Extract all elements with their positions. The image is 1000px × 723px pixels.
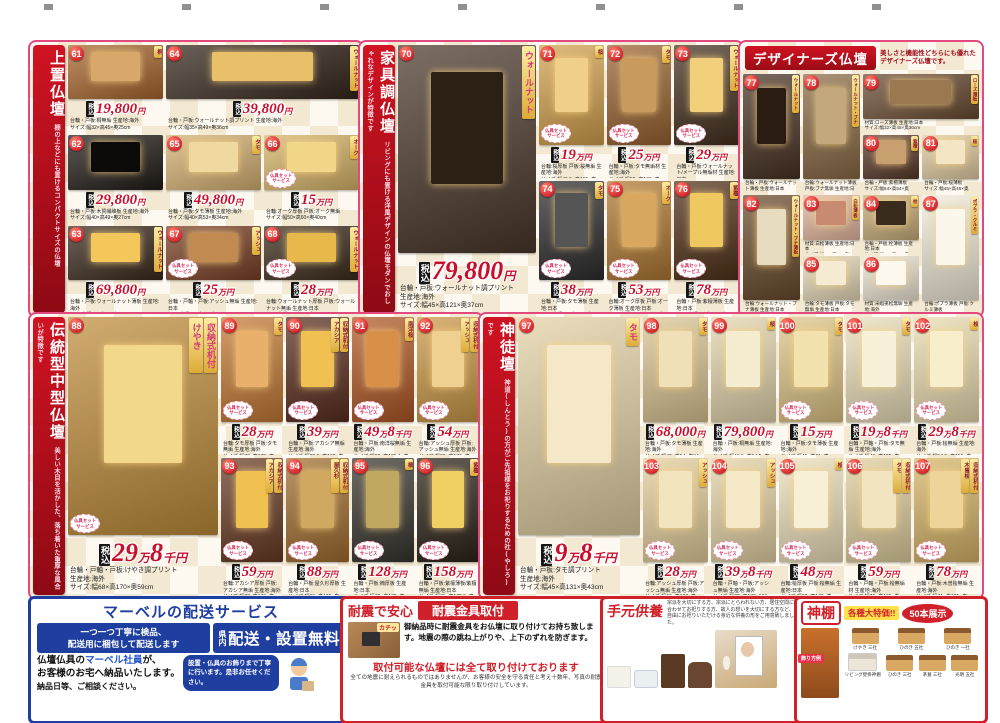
product-100: 100タモ仏具セットサービス税込15万円台輪・戸板:タモ薄板 生産地:海外サイズ… <box>779 317 844 455</box>
product-price: 税込29万8千円 <box>68 535 218 566</box>
product-image-interior <box>726 331 760 387</box>
material-tag: アカシア <box>266 459 274 493</box>
price-unit: 万円 <box>322 431 338 440</box>
kamidana-item: リビング壁掛神棚 <box>845 653 881 678</box>
product-number-badge: 78 <box>804 75 819 90</box>
product-number-badge: 61 <box>69 46 84 61</box>
product-price: 税込39万円 <box>286 422 348 440</box>
shrine-thumbnail <box>944 628 971 644</box>
shrine-thumbnail <box>848 653 877 671</box>
product-caption: 台輪・戸板:ウォールナット/メープル無垢材 生産地:日本サイズ:幅53×高117… <box>674 163 739 178</box>
material-tag: アッシュ <box>699 459 707 487</box>
tax-included-label: 税込 <box>618 282 626 298</box>
product-image-interior <box>876 140 906 164</box>
price-unit: 千円 <box>959 431 975 440</box>
price-number: 48 <box>800 565 815 580</box>
price-unit: 万円 <box>316 289 332 298</box>
tax-included-label: 税込 <box>297 564 305 580</box>
price-number: 69,800 <box>96 283 137 298</box>
product-86: 86材質:米蝦夷松無垢 生産地:海外サイズ:幅40×高51×奥33cm <box>863 256 920 314</box>
tax-included-label: 税込 <box>358 564 366 580</box>
butsugu-set-badge: 仏具セットサービス <box>168 259 198 278</box>
material-tags: タモ <box>626 318 639 346</box>
price-unit: 千円 <box>593 552 617 566</box>
price-unit: 万円 <box>218 289 234 298</box>
butsugu-set-badge: 仏具セットサービス <box>266 169 296 188</box>
product-image-interior <box>366 471 398 527</box>
material-tag: タモ <box>595 182 603 199</box>
product-image-interior <box>936 140 966 164</box>
product-87: 87ポプラ・クルミ台輪:ポプラ薄板 戸板:クルミ薄板サイズ:幅51×高145.5… <box>922 195 979 313</box>
price-unit: 千円 <box>891 431 907 440</box>
price-number: 25 <box>203 283 218 298</box>
product-81: 81桜台輪・戸板:桜薄板サイズ:幅45×高45×奥33cm <box>922 135 979 193</box>
material-tags: タモ <box>902 318 910 335</box>
product-price: 税込28万円 <box>221 422 283 440</box>
product-caption: 材質:白松薄板 生産地:日本サイズ:幅59×高41×奥30cm <box>803 240 860 253</box>
product-95: 95楠仏具セットサービス税込128万円台輪・戸板:楠厚板 生産地:日本サイズ:幅… <box>352 458 414 596</box>
butsugu-set-badge: 仏具セットサービス <box>609 259 639 278</box>
product-image-interior <box>659 471 693 527</box>
product-number-badge: 98 <box>644 318 659 333</box>
material-tag: ウォールナット <box>792 75 799 113</box>
material-tags: 桧 <box>970 318 978 330</box>
product-caption: 台輪・戸板:桐無垢 生産地:海外サイズ:幅43.5×高54.5×奥35cm <box>711 440 776 455</box>
price-number: 29,800 <box>96 193 137 208</box>
product-caption: 台輪:オーク厚板 戸板:オーク無垢サイズ:幅50×高60×奥40cm <box>264 208 359 223</box>
price-unit: 千円 <box>395 431 411 440</box>
tax-included-label: 税込 <box>86 282 94 298</box>
price-unit: 万円 <box>456 571 472 580</box>
product-63: 63ウォールナット税込69,800円台輪・戸板:ウォールナット薄板 生産地:海外… <box>68 226 163 313</box>
product-caption: 台輪・戸板:タモ薄板 生産地:海外サイズ:幅45×高61×奥36.5cm <box>779 440 844 455</box>
product-price: 税込48万円 <box>779 562 844 580</box>
product-price: 税込19万円 <box>539 145 604 163</box>
product-image-interior <box>930 471 964 527</box>
product-image-interior <box>622 58 656 112</box>
material-tags: オーク <box>350 136 358 159</box>
delivery-check-badge: 一つ一つ丁寧に検品、配送用に梱包して配送します <box>37 623 210 653</box>
section-title: 伝統型中型仏壇 <box>48 322 65 441</box>
material-tag: ウォールナット <box>154 227 162 272</box>
material-tag: タモ <box>626 318 639 346</box>
material-tags: ウォールナット <box>350 46 358 91</box>
material-tag: 桜 <box>767 318 775 330</box>
butsugu-set-badge: 仏具セットサービス <box>288 401 318 420</box>
material-tags: けやき収納式机付 <box>189 318 217 373</box>
butsugu-set-badge: 仏具セットサービス <box>916 401 946 420</box>
material-tag: 木曽桧 <box>961 459 969 493</box>
product-image-interior <box>212 52 312 81</box>
price-number: 28 <box>665 565 680 580</box>
product-number-badge: 104 <box>712 459 727 474</box>
product-caption: 台輪・戸板:紫檀薄板サイズ:幅64×高54×奥35cm <box>863 179 920 192</box>
product-image-interior <box>816 201 846 225</box>
tax-included-label: 税込 <box>851 424 859 440</box>
kamidana-item: ひのき 一社 <box>944 628 971 651</box>
price-number: 8 <box>150 540 163 566</box>
product-number-badge: 71 <box>540 46 555 61</box>
product-number-badge: 89 <box>222 318 237 333</box>
kamidana-display-photo: 飾り方例 <box>801 628 839 698</box>
tax-included-label: 税込 <box>646 424 654 440</box>
material-tag: アッシュ <box>252 227 260 255</box>
product-image-interior <box>555 193 589 247</box>
product-62: 62税込29,800円台輪・戸板:木質繊維板 生産地:海外サイズ:幅40×高49… <box>68 135 163 222</box>
product-caption: 台輪:アッシュ厚板 戸板:アッシュ無垢 生産地:海外サイズ:幅69×高170×奥… <box>417 440 479 455</box>
product-80: 80紫檀台輪・戸板:紫檀薄板サイズ:幅64×高54×奥35cm <box>863 135 920 193</box>
delivery-check-line2: 配送用に梱包して配送します <box>68 639 179 649</box>
price-unit: 万円 <box>815 571 831 580</box>
shrine-thumbnail <box>852 628 879 644</box>
material-tags: タモ <box>662 46 670 63</box>
material-tags: 桜 <box>767 318 775 330</box>
product-image-interior <box>862 331 896 387</box>
price-number: 39,800 <box>243 102 284 117</box>
price-number: 128 <box>368 565 391 580</box>
product-caption: 台輪・戸板:木質繊維板 生産地:海外サイズ:幅40×高49×奥27cm <box>68 208 163 223</box>
product-image-interior <box>366 331 398 387</box>
product-caption: 台輪・戸板:桜薄板サイズ:幅45×高45×奥33cm <box>922 179 979 192</box>
butsugu-set-badge: 仏具セットサービス <box>541 259 571 278</box>
price-number: 8 <box>580 540 593 566</box>
butsugu-set-badge: 仏具セットサービス <box>419 401 449 420</box>
material-tag: タモ <box>662 46 670 63</box>
price-unit: 円 <box>765 431 773 440</box>
material-tags: ウォールナット <box>154 227 162 272</box>
material-tags: 木曽桧収納式机付 <box>961 459 978 493</box>
kamidana-item-label: ひのき 三社 <box>888 672 912 678</box>
price-unit: 万円 <box>711 289 727 298</box>
price-number: 9 <box>554 540 567 566</box>
kamidana-panel: 神棚 各種大特価!! 50本展示 飾り方例 けやき 三社ひのき 五社ひのき 一社… <box>794 596 988 723</box>
product-grid-designers: 77ウォールナット台輪・戸板:ウォールナット薄板 生産地:日本サイズ:幅46.5… <box>743 74 979 313</box>
product-93: 93アカシア収納式机付仏具セットサービス税込59万円台輪:アカシア厚板 戸板:ア… <box>221 458 283 596</box>
price-unit: 万円 <box>680 571 696 580</box>
tax-included-label: 税込 <box>551 147 559 163</box>
kamidana-item-label: 光明 五社 <box>955 672 974 678</box>
material-tags: オーク <box>662 182 670 205</box>
product-caption: 台輪・戸軸・戸板:アッシュ無垢 生産地:日本サイズ:幅59×高78×奥50cm <box>166 298 261 313</box>
product-grid-kagucho: 70ウォールナット税込79,800円台輪・戸板:ウォールナット調プリント生産地:… <box>398 45 739 313</box>
material-tags: 紫檀 <box>470 459 478 476</box>
material-tags: タモ <box>595 182 603 199</box>
product-image-interior <box>301 331 333 387</box>
tax-included-label: 税込 <box>232 424 240 440</box>
product-number-badge: 95 <box>353 459 368 474</box>
price-number: 49,800 <box>194 193 235 208</box>
product-price: 税込9万8千円 <box>518 535 640 566</box>
product-caption: 台輪・戸板:屋久杉厚板 生産地:日本サイズ:幅69×高170×奥58cm <box>286 580 348 595</box>
section-banner-kagucho: 家具調仏壇リビングにも置ける洋風デザインの仏壇モダンでおしゃれなデザインが特徴で… <box>363 45 395 313</box>
material-tags: アッシュ <box>767 459 775 487</box>
product-caption: 台輪・戸板:木曽桧無垢 生産地:海外サイズ:幅71×高171×奥66cm <box>914 580 979 595</box>
material-tags: 楠 <box>405 459 413 471</box>
product-image: ウォールナット <box>398 45 536 253</box>
product-64: 64ウォールナット税込39,800円台輪・戸板:ウォールナット調プリント 生産地… <box>166 45 359 132</box>
material-tag: 桜 <box>971 136 978 147</box>
butsugu-set-badge: 仏具セットサービス <box>645 541 675 560</box>
tax-included-label: 税込 <box>918 424 926 440</box>
product-image: ウォールナット <box>166 45 359 99</box>
kamidana-item-label: リビング壁掛神棚 <box>845 672 881 678</box>
kamidana-item: ひのき 五社 <box>898 628 925 651</box>
product-image: ローズ薄板 <box>863 74 980 119</box>
butsugu-set-badge: 仏具セットサービス <box>266 259 296 278</box>
product-image-interior <box>287 142 336 171</box>
price-number: 15 <box>301 193 316 208</box>
material-tags: 屋久杉収納式机付 <box>331 459 348 493</box>
material-tags: ウォールナット <box>522 46 535 119</box>
product-68: 68ウォールナット仏具セットサービス税込28万円台輪:ウォールナット厚板 戸板:… <box>264 226 359 313</box>
material-tag: 桧 <box>835 459 843 471</box>
product-grid-shinto: 97タモ税込9万8千円台輪・戸板:タモ調プリント生産地:海外サイズ:幅45×高1… <box>518 317 979 595</box>
material-tags: 紫檀 <box>730 182 738 199</box>
product-image-interior <box>757 88 787 145</box>
kamidana-header: 神棚 各種大特価!! 50本展示 <box>801 601 981 625</box>
product-price: 税込29万円 <box>674 145 739 163</box>
bracket-photo: カチッ <box>348 622 400 658</box>
material-tag: ウォールナット <box>522 46 535 119</box>
product-caption: 台輪・戸板:アカシア無垢 生産地:海外サイズ:幅62.6×高162×奥57cm <box>286 440 348 455</box>
product-97: 97タモ税込9万8千円台輪・戸板:タモ調プリント生産地:海外サイズ:幅45×高1… <box>518 317 640 595</box>
product-price: 税込49,800円 <box>166 190 261 208</box>
tax-included-label: 税込 <box>232 564 240 580</box>
kamidana-item-label: けやき 三社 <box>853 645 877 651</box>
product-number-badge: 83 <box>804 196 819 211</box>
product-caption: 台輪・戸板:紫檀薄板/紫檀無垢 生産地:日本サイズ:幅71×高172.5×奥63… <box>417 580 479 595</box>
taishin-highlight-text: 取付可能な仏壇には全て取り付けております <box>348 659 604 674</box>
click-sound-label: カチッ <box>377 623 399 632</box>
kamidana-item: 光明 五社 <box>951 655 978 678</box>
product-price: 税込29万8千円 <box>914 422 979 440</box>
product-image-interior <box>690 58 724 112</box>
material-tags: ローズ薄板 <box>971 75 978 104</box>
product-grid-dentou: 88けやき収納式机付仏具セットサービス税込29万8千円台輪・戸軸・戸板:けやき調… <box>68 317 479 595</box>
butsugu-set-badge: 仏具セットサービス <box>676 259 706 278</box>
material-tag: 南洋桜 <box>405 318 413 341</box>
product-83: 83白松薄板材質:白松薄板 生産地:日本サイズ:幅59×高41×奥30cm <box>803 195 860 253</box>
kamidana-item-label: ひのき 五社 <box>900 645 924 651</box>
product-caption: 台輪・戸板:タモ薄板 生産地:海外サイズ:幅40×高53×奥34cm <box>166 208 261 223</box>
butsugu-set-badge: 仏具セットサービス <box>713 541 743 560</box>
material-tags: 桜 <box>595 46 603 58</box>
product-image-interior <box>431 72 503 184</box>
product-number-badge: 94 <box>287 459 302 474</box>
price-unit: 万円 <box>391 571 407 580</box>
product-number-badge: 97 <box>519 318 534 333</box>
material-tags: ウォールナット・ブナ薄板 <box>792 196 799 257</box>
material-tag: ウォールナット <box>350 227 358 272</box>
material-tag: 紫檀 <box>730 182 738 199</box>
product-image: けやき収納式机付仏具セットサービス <box>68 317 218 535</box>
tax-included-label: 税込 <box>714 424 722 440</box>
product-number-badge: 64 <box>167 46 182 61</box>
price-unit: 円 <box>137 289 145 298</box>
product-caption: 台輪・戸板:ウォールナット調プリント生産地:海外サイズ:幅45×高121×奥37… <box>398 284 536 313</box>
material-tag: 屋久杉 <box>331 459 339 493</box>
tax-included-label: 税込 <box>291 192 299 208</box>
product-73: 73ウォールナット仏具セットサービス税込29万円台輪・戸板:ウォールナット/メー… <box>674 45 739 178</box>
product-74: 74タモ仏具セットサービス税込38万円台輪・戸板:タモ薄板 生産地:日本サイズ:… <box>539 181 604 314</box>
product-66: 66オーク仏具セットサービス税込15万円台輪:オーク厚板 戸板:オーク無垢サイズ… <box>264 135 359 222</box>
material-tag: アッシュ <box>461 318 469 352</box>
price-unit: 円 <box>284 108 292 117</box>
material-tag: オーク <box>662 182 670 205</box>
product-number-badge: 74 <box>540 182 555 197</box>
price-unit: 円 <box>137 199 145 208</box>
product-99: 99桜税込79,800円台輪・戸板:桐無垢 生産地:海外サイズ:幅43.5×高5… <box>711 317 776 455</box>
product-price: 税込59万円 <box>846 562 911 580</box>
product-price: 税込39万8千円 <box>711 562 776 580</box>
product-103: 103アッシュ仏具セットサービス税込28万円台輪:アッシュ厚板 戸板:アッシュ無… <box>643 458 708 596</box>
tax-included-label: 税込 <box>541 544 552 566</box>
product-number-badge: 76 <box>675 182 690 197</box>
tax-included-label: 税込 <box>655 564 663 580</box>
keepsake-mini-altar-dark <box>661 654 685 688</box>
butsudan-catalog-flyer: 上置仏壇棚の上などにも置けるコンパクトサイズの仏壇 61桐税込19,800円台輪… <box>0 0 1000 723</box>
product-price: 税込28万円 <box>264 280 359 298</box>
product-number-badge: 88 <box>69 318 84 333</box>
product-image-interior <box>91 233 140 262</box>
material-tag: ウォールナット <box>350 46 358 91</box>
display-count-badge: 50本展示 <box>902 604 953 623</box>
price-number: 28 <box>301 283 316 298</box>
product-67: 67アッシュ仏具セットサービス税込25万円台輪・戸軸・戸板:アッシュ無垢 生産地… <box>166 226 261 313</box>
product-image-interior <box>236 471 268 527</box>
tax-included-label: 税込 <box>424 564 432 580</box>
material-tags: ウォールナット・ブナ <box>852 75 859 127</box>
material-tags: 南洋桜 <box>405 318 413 341</box>
product-image-interior <box>555 58 589 112</box>
price-unit: 万円 <box>643 289 659 298</box>
product-number-badge: 63 <box>69 227 84 242</box>
material-tag: ウォールナット・ブナ <box>852 75 859 127</box>
tax-included-label: 税込 <box>551 282 559 298</box>
price-unit: 円 <box>137 108 145 117</box>
earthquake-bracket-panel: 耐震で安心 耐震金具取付 カチッ 御納品時に耐震金具をお仏壇に取り付けてお持ち致… <box>340 596 612 723</box>
price-number: 49 <box>364 425 379 440</box>
material-tags: アッシュ <box>252 227 260 255</box>
section-banner-shinto: 神徒壇神道(しんとう)の方がご先祖様をお祀りするための社(やしろ)です <box>483 317 515 595</box>
product-107: 107木曽桧収納式机付仏具セットサービス税込78万円台輪・戸板:木曽桧無垢 生産… <box>914 458 979 596</box>
tax-included-label: 税込 <box>419 262 430 284</box>
price-number: 29 <box>696 148 711 163</box>
section-designers-butsudan: デザイナーズ仏壇 美しさと機能性どちらにも優れたデザイナーズ仏壇です。 77ウォ… <box>738 40 984 318</box>
material-tag: タモ <box>699 318 707 335</box>
tax-included-label: 税込 <box>297 424 305 440</box>
product-106: 106タモ収納式机付仏具セットサービス税込59万円台輪・戸軸・戸板:桧無垢材 生… <box>846 458 911 596</box>
product-104: 104アッシュ仏具セットサービス税込39万8千円台輪・戸軸・戸板:アッシュ無垢 … <box>711 458 776 596</box>
product-grid-uwaoki: 61桐税込19,800円台輪・戸板:桐無垢 生産地:海外サイズ:幅32×高45×… <box>68 45 359 313</box>
product-number-badge: 72 <box>608 46 623 61</box>
product-image-interior <box>794 471 828 527</box>
product-96: 96紫檀仏具セットサービス税込158万円台輪・戸板:紫檀薄板/紫檀無垢 生産地:… <box>417 458 479 596</box>
product-94: 94屋久杉収納式机付仏具セットサービス税込88万円台輪・戸板:屋久杉厚板 生産地… <box>286 458 348 596</box>
section-banner-dentou: 伝統型中型仏壇美しい木目を活かした、落ち着いた重厚な風合いが特徴です <box>33 317 65 595</box>
price-unit: 万 <box>876 431 884 440</box>
section-subtitle: 棚の上などにも置けるコンパクトサイズの仏壇 <box>53 124 60 267</box>
price-unit: 万円 <box>711 154 727 163</box>
product-price: 税込54万円 <box>417 422 479 440</box>
product-image-interior <box>690 193 724 247</box>
delivery-person-icon <box>282 655 316 695</box>
product-caption: 台輪・戸板:タモ無垢材 生産地:海外サイズ:幅50×高136×奥49cm <box>607 163 672 178</box>
price-unit: 万円 <box>316 199 332 208</box>
product-price: 税込49万8千円 <box>352 422 414 440</box>
keepsake-crystal-case <box>634 670 658 688</box>
kamidana-item-label: 茅葺 三社 <box>923 672 942 678</box>
product-number-badge: 91 <box>353 318 368 333</box>
product-price: 税込39,800円 <box>166 99 359 117</box>
kamidana-item-label: ひのき 一社 <box>946 645 970 651</box>
material-tag: 桐 <box>154 46 162 58</box>
product-number-badge: 68 <box>265 227 280 242</box>
product-price: 税込29,800円 <box>68 190 163 208</box>
taishin-header: 耐震で安心 耐震金具取付 <box>348 601 604 620</box>
product-caption: 台輪:桧厚板 戸板:桧無垢 生産地:日本サイズ:幅63×高170×奥59cm <box>779 580 844 595</box>
product-number-badge: 99 <box>712 318 727 333</box>
product-price: 税込28万円 <box>643 562 708 580</box>
kamidana-row1: けやき 三社ひのき 五社ひのき 一社 <box>842 628 981 651</box>
tax-included-label: 税込 <box>184 192 192 208</box>
price-unit: 万円 <box>951 571 967 580</box>
product-caption: 台輪:アカシア厚板 戸板:アカシア無垢 生産地:海外サイズ:幅77×高173×奥… <box>221 580 283 595</box>
temoto-kuyou-panel: 手元供養 宗派を大切にする方、宗派にとらわれない方、居住空間に合わせてお祀りする… <box>600 596 804 723</box>
product-caption: 台輪・戸軸・戸板:アッシュ無垢 生産地:海外サイズ:幅77×高173~180×奥… <box>711 580 776 595</box>
free-delivery-label: 配送・設置無料 <box>228 627 340 649</box>
product-78: 78ウォールナット・ブナ台輪:ウォールナット薄板 戸板:ブナ無垢 生産地:日本サ… <box>803 74 860 192</box>
tax-included-label: 税込 <box>618 147 626 163</box>
price-unit: 千円 <box>755 571 771 580</box>
product-number-badge: 103 <box>644 459 659 474</box>
product-89: 89タモ仏具セットサービス税込28万円台輪:タモ厚板 戸板:タモ無垢 生産地:海… <box>221 317 283 455</box>
product-number-badge: 70 <box>399 46 414 61</box>
tax-included-label: 税込 <box>715 564 723 580</box>
temoto-product-thumbnails <box>607 630 797 688</box>
material-tag: タモ <box>252 136 260 153</box>
material-tag: 収納式机付 <box>340 459 348 493</box>
product-price: 税込69,800円 <box>68 280 163 298</box>
butsugu-set-badge: 仏具セットサービス <box>541 124 571 143</box>
product-77: 77ウォールナット台輪・戸板:ウォールナット薄板 生産地:日本サイズ:幅46.5… <box>743 74 800 192</box>
product-caption: 材質:ローズ薄板 生産地:日本サイズ:幅32×高45×奥30cm <box>863 119 980 132</box>
product-92: 92アッシュ収納式机付仏具セットサービス税込54万円台輪:アッシュ厚板 戸板:ア… <box>417 317 479 455</box>
product-caption: 台輪・戸板:紫檀薄板 生産地:日本サイズ:幅51×高140×奥43cm <box>674 298 739 313</box>
tax-included-label: 税込 <box>193 282 201 298</box>
keepsake-mini-altar-arch <box>688 662 712 688</box>
kamidana-item: ひのき 三社 <box>886 655 913 678</box>
product-number-badge: 96 <box>418 459 433 474</box>
price-number: 79,800 <box>724 425 765 440</box>
material-tag: タモ <box>274 318 282 335</box>
product-98: 98タモ税込68,000円台輪・戸板:タモ薄板 生産地:海外サイズ:幅40×高5… <box>643 317 708 455</box>
product-caption: 台輪・戸板:タモ薄板 生産地:日本サイズ:幅45×高123×奥40cm <box>539 298 604 313</box>
price-unit: 万 <box>138 552 150 566</box>
product-price: 税込79,800円 <box>711 422 776 440</box>
material-tags: アカシア収納式机付 <box>331 318 348 352</box>
price-number: 158 <box>434 565 457 580</box>
product-image-interior <box>930 331 964 387</box>
shrine-thumbnail <box>919 655 946 671</box>
material-tag: ウォールナット <box>730 46 738 91</box>
product-price: 税込15万円 <box>264 190 359 208</box>
free-delivery-badge: 県内 配送・設置無料 <box>213 623 345 653</box>
product-caption: 台輪・戸板:ウォールナット薄板 生産地:海外サイズ:幅39×高42×奥30cm <box>68 298 163 313</box>
material-tags: ウォールナット <box>792 75 799 113</box>
section-kagucho-butsudan: 家具調仏壇リビングにも置ける洋風デザインの仏壇モダンでおしゃれなデザインが特徴で… <box>358 40 744 318</box>
product-90: 90アカシア収納式机付仏具セットサービス税込39万円台輪・戸板:アカシア無垢 生… <box>286 317 348 455</box>
